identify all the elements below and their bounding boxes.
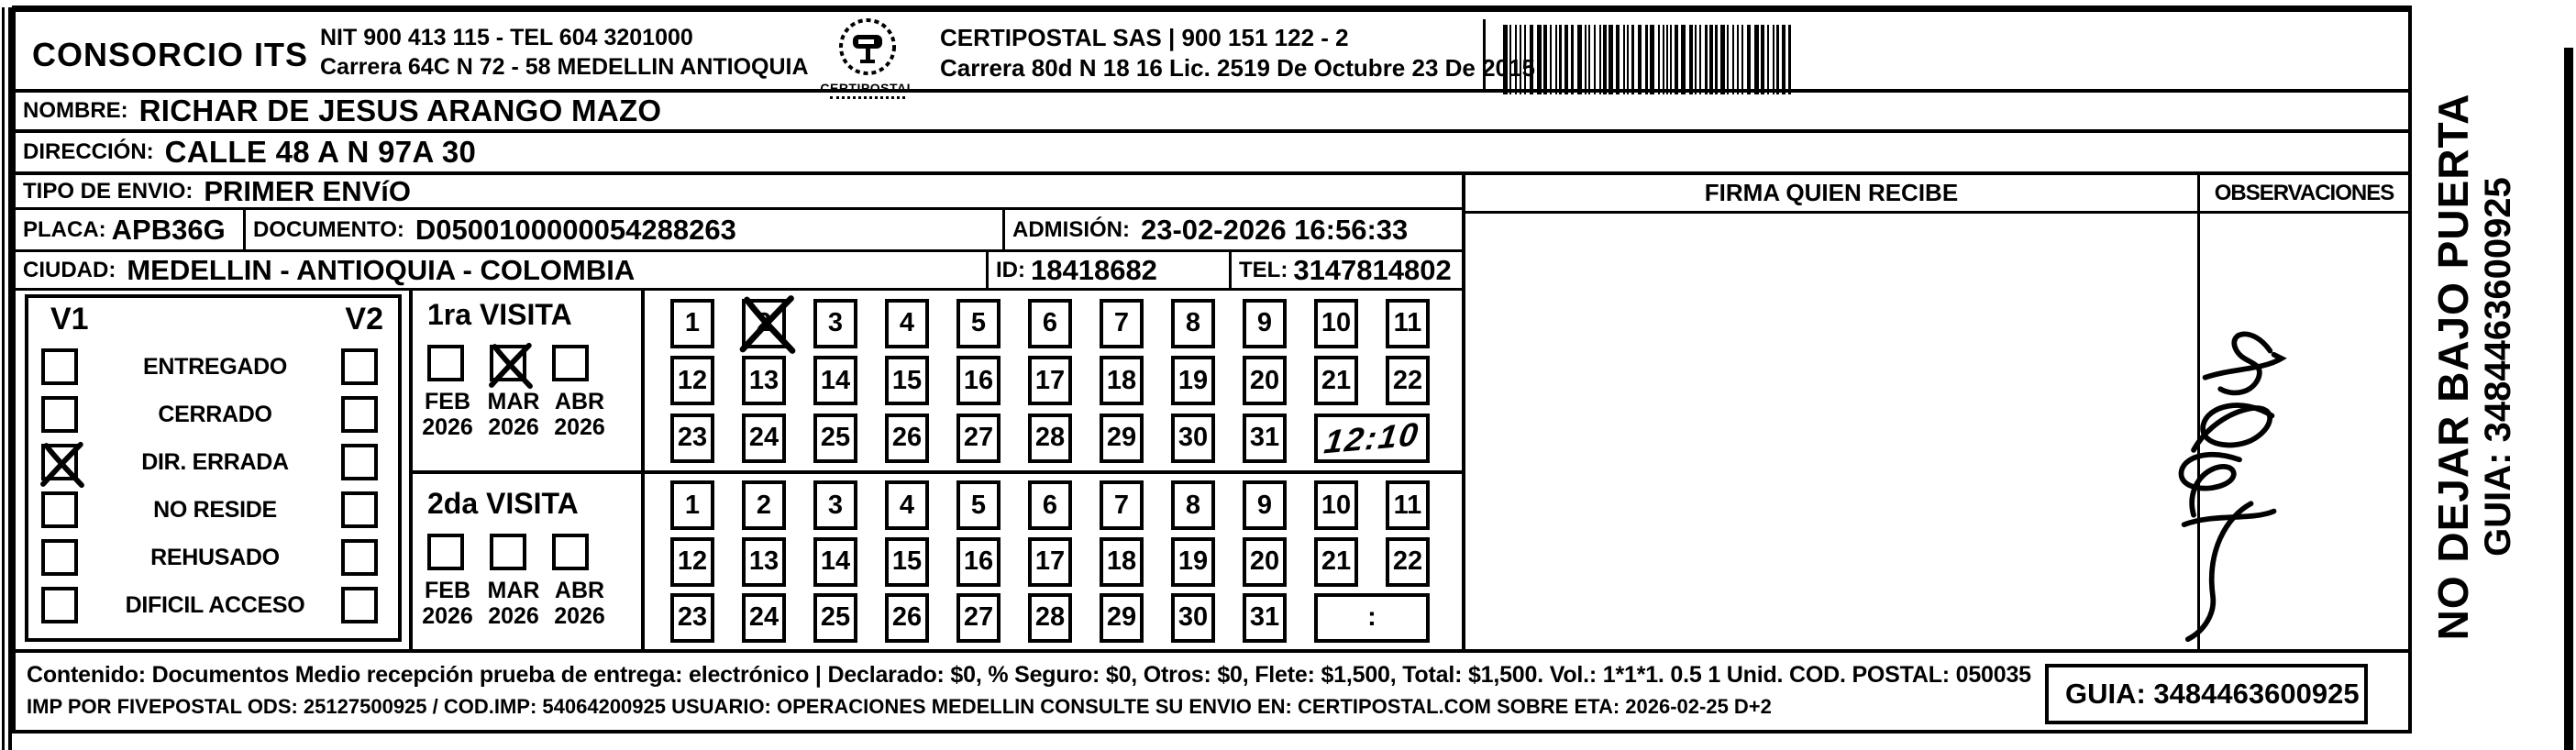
shipment-detail-panel: TIPO DE ENVIO: PRIMER ENVíO PLACA: APB36… [16,175,1465,649]
checkbox [41,491,78,528]
scanned-delivery-form-page: CONSORCIO ITS NIT 900 413 115 - TEL 604 … [0,0,2576,750]
day-box: 11 [1386,480,1430,530]
visit-time-box: : [1314,593,1430,643]
day-row: 23242526272829303112:10 [670,414,1462,463]
time-colon: : [1367,602,1376,633]
day-box: 6 [1028,480,1072,530]
visit-month-labels: FEB2026MAR2026ABR2026 [415,389,641,440]
visit-month-labels: FEB2026MAR2026ABR2026 [415,578,641,629]
signature-panel-body [1465,214,2408,649]
signature-scribble [2147,314,2330,658]
day-row: 232425262728293031: [670,593,1462,643]
status-option-row: DIFICIL ACCESO [41,587,389,623]
visit-title: 1ra VISITA [413,291,641,332]
month-label: MAR2026 [481,578,547,629]
checkbox [341,539,378,576]
status-option-label: CERRADO [89,402,341,428]
status-option-label: REHUSADO [89,545,341,571]
day-box: 8 [1171,299,1215,348]
day-box: 20 [1243,537,1287,587]
checkbox [41,444,78,480]
handwritten-x-mark [485,340,536,392]
placa-documento-row: PLACA: APB36G DOCUMENTO: D05001000000542… [16,210,1462,252]
admision-label: ADMISIÓN: [1012,217,1130,243]
placa-label: PLACA: [23,217,106,243]
day-row: 1234567891011 [670,299,1462,348]
firma-area [1465,214,2197,649]
status-option-row: CERRADO [41,396,389,433]
checkbox [341,444,378,480]
handwritten-x-mark [37,439,88,491]
day-box: 1 [670,480,714,530]
day-row: 1213141516171819202122 [670,537,1462,587]
day-box: 1 [670,299,714,348]
day-box: 25 [813,414,857,463]
visit-panel: 1ra VISITA FEB2026MAR2026ABR2026 [413,291,641,470]
provider-address: Carrera 80d N 18 16 Lic. 2519 De Octubre… [940,53,1535,83]
direccion-label: DIRECCIÓN: [23,139,154,165]
provider-info: CERTIPOSTAL SAS | 900 151 122 - 2 Carrer… [940,23,1535,83]
ciudad-label: CIUDAD: [23,258,116,283]
day-box: 3 [813,299,857,348]
day-box: 22 [1386,537,1430,587]
id-label: ID: [996,258,1025,283]
checkbox [552,345,589,381]
day-box: 13 [742,356,786,405]
day-box: 21 [1314,537,1358,587]
status-option-rows: ENTREGADOCERRADODIR. ERRADANO RESIDEREHU… [28,337,398,638]
day-row: 1234567891011 [670,480,1462,530]
day-box: 11 [1386,299,1430,348]
tel-label: TEL: [1239,258,1288,283]
placa-value: APB36G [112,214,226,247]
visit-month-checkboxes [427,345,641,381]
firma-header: FIRMA QUIEN RECIBE [1465,175,2197,211]
month-label: FEB2026 [415,389,481,440]
logo-tagline-squiggle [830,96,905,99]
checkbox [552,534,589,570]
day-box: 31 [1243,414,1287,463]
v2-header: V2 [345,302,383,337]
admision-value: 23-02-2026 16:56:33 [1141,214,1408,247]
checkbox [41,396,78,433]
day-box: 24 [742,593,786,643]
day-box: 22 [1386,356,1430,405]
nombre-value: RICHAR DE JESUS ARANGO MAZO [139,94,662,128]
form-header: CONSORCIO ITS NIT 900 413 115 - TEL 604 … [16,12,2408,93]
visit-day-grids: 1234567891011121314151617181920212223242… [645,291,1462,649]
signature-panel: FIRMA QUIEN RECIBE OBSERVACIONES [1465,175,2408,649]
day-box: 17 [1028,356,1072,405]
tipo-envio-value: PRIMER ENVíO [204,175,411,208]
day-row: 1213141516171819202122 [670,356,1462,405]
guia-number-box: GUIA: 3484463600925 [2045,664,2368,724]
placa-cell: PLACA: APB36G [16,210,243,249]
checkbox [490,534,526,570]
ciudad-cell: CIUDAD: MEDELLIN - ANTIOQUIA - COLOMBIA [16,252,986,288]
status-option-label: NO RESIDE [89,497,341,524]
day-box: 10 [1314,299,1358,348]
day-box: 16 [956,537,1001,587]
day-box: 17 [1028,537,1072,587]
tel-cell: TEL: 3147814802 [1229,252,1462,288]
ciudad-id-tel-row: CIUDAD: MEDELLIN - ANTIOQUIA - COLOMBIA … [16,252,1462,291]
day-box: 5 [956,299,1001,348]
tipo-envio-row: TIPO DE ENVIO: PRIMER ENVíO [16,175,1462,210]
day-box: 19 [1171,356,1215,405]
day-box: 6 [1028,299,1072,348]
status-option-row: REHUSADO [41,539,389,576]
page-left-rule [2,7,5,750]
day-box: 10 [1314,480,1358,530]
checkbox [427,534,464,570]
visit-title: 2da VISITA [413,474,641,521]
day-box: 21 [1314,356,1358,405]
day-box: 26 [885,414,929,463]
day-box: 12 [670,537,714,587]
day-box: 2 [742,299,786,348]
direccion-row: DIRECCIÓN: CALLE 48 A N 97A 30 [16,133,2408,175]
day-box: 15 [885,537,929,587]
nombre-row: NOMBRE: RICHAR DE JESUS ARANGO MAZO [16,93,2408,133]
day-box: 23 [670,593,714,643]
checkbox [490,345,526,381]
handwritten-time: 12:10 [1322,414,1422,461]
day-box: 5 [956,480,1001,530]
visit-day-grid: 1234567891011121314151617181920212223242… [645,291,1462,470]
day-box: 28 [1028,593,1072,643]
day-box: 29 [1100,414,1144,463]
day-box: 25 [813,593,857,643]
delivery-status-section: V1 V2 ENTREGADOCERRADODIR. ERRADANO RESI… [16,291,1462,649]
page-right-edge-bar [2564,48,2573,750]
month-label: ABR2026 [547,578,613,629]
form-middle: TIPO DE ENVIO: PRIMER ENVíO PLACA: APB36… [16,175,2408,649]
day-box: 4 [885,480,929,530]
signature-panel-headers: FIRMA QUIEN RECIBE OBSERVACIONES [1465,175,2408,214]
day-box: 27 [956,593,1001,643]
day-box: 9 [1243,299,1287,348]
day-box: 19 [1171,537,1215,587]
company-nit: NIT 900 413 115 - TEL 604 3201000 [320,23,809,52]
visit-panel: 2da VISITA FEB2026MAR2026ABR2026 [413,470,641,649]
month-label: ABR2026 [547,389,613,440]
status-option-label: DIR. ERRADA [89,449,341,476]
nombre-label: NOMBRE: [23,98,128,124]
checkbox [41,587,78,623]
day-box: 26 [885,593,929,643]
provider-name: CERTIPOSTAL SAS | 900 151 122 - 2 [940,23,1535,53]
day-box: 15 [885,356,929,405]
day-box: 7 [1100,480,1144,530]
day-box: 16 [956,356,1001,405]
visit-month-checkboxes [427,534,641,570]
day-box: 14 [813,356,857,405]
observaciones-header: OBSERVACIONES [2197,175,2408,211]
documento-label: DOCUMENTO: [253,217,404,243]
v1-header: V1 [50,302,89,337]
status-cell: V1 V2 ENTREGADOCERRADODIR. ERRADANO RESI… [16,291,409,649]
tel-value: 3147814802 [1293,254,1451,287]
visit-month-column: 1ra VISITA FEB2026MAR2026ABR2026 2da VIS… [409,291,645,649]
day-box: 18 [1100,537,1144,587]
handwritten-x-mark [735,291,801,358]
day-box: 20 [1243,356,1287,405]
no-dejar-bajo-puerta-text: NO DEJAR BAJO PUERTA [2428,94,2478,641]
day-box: 4 [885,299,929,348]
day-box: 14 [813,537,857,587]
company-info: NIT 900 413 115 - TEL 604 3201000 Carrer… [320,23,809,82]
status-checkbox-box: V1 V2 ENTREGADOCERRADODIR. ERRADANO RESI… [25,294,402,642]
delivery-form: CONSORCIO ITS NIT 900 413 115 - TEL 604 … [12,6,2412,733]
day-box: 30 [1171,593,1215,643]
company-address: Carrera 64C N 72 - 58 MEDELLIN ANTIOQUIA [320,52,809,82]
certipostal-stamp-logo-icon: CERTIPOSTAL [820,14,915,99]
status-option-row: DIR. ERRADA [41,444,389,480]
day-box: 3 [813,480,857,530]
day-box: 31 [1243,593,1287,643]
visit-columns-header: V1 V2 [28,298,398,337]
side-guia-number: GUIA: 3484463600925 [2478,177,2519,557]
day-box: 18 [1100,356,1144,405]
day-box: 27 [956,414,1001,463]
month-label: MAR2026 [481,389,547,440]
id-cell: ID: 18418682 [986,252,1229,288]
status-option-row: ENTREGADO [41,348,389,385]
logo-caption: CERTIPOSTAL [820,81,915,95]
documento-cell: DOCUMENTO: D0500100000054288263 [243,210,1002,249]
day-box: 8 [1171,480,1215,530]
day-box: 7 [1100,299,1144,348]
day-box: 24 [742,414,786,463]
day-box: 30 [1171,414,1215,463]
admision-cell: ADMISIÓN: 23-02-2026 16:56:33 [1002,210,1462,249]
checkbox [341,396,378,433]
status-option-label: DIFICIL ACCESO [89,592,341,619]
visit-day-grid: 1234567891011121314151617181920212223242… [645,470,1462,649]
form-footer: Contenido: Documentos Medio recepción pr… [16,649,2408,730]
status-option-label: ENTREGADO [89,354,341,381]
checkbox [341,348,378,385]
stamp-circle-icon [835,14,901,80]
tipo-envio-label: TIPO DE ENVIO: [23,179,193,204]
visit-time-box: 12:10 [1314,414,1430,463]
documento-value: D0500100000054288263 [415,214,736,247]
day-box: 13 [742,537,786,587]
month-label: FEB2026 [415,578,481,629]
day-box: 28 [1028,414,1072,463]
guia-barcode [1503,25,1802,94]
day-box: 2 [742,480,786,530]
checkbox [41,348,78,385]
observaciones-area [2197,214,2408,649]
header-divider [1483,19,1486,89]
day-box: 12 [670,356,714,405]
side-note-rotated: NO DEJAR BAJO PUERTA GUIA: 3484463600925 [2405,64,2542,669]
day-box: 23 [670,414,714,463]
day-box: 29 [1100,593,1144,643]
checkbox [41,539,78,576]
checkbox [427,345,464,381]
checkbox [341,587,378,623]
id-value: 18418682 [1031,254,1157,287]
ciudad-value: MEDELLIN - ANTIOQUIA - COLOMBIA [127,254,635,287]
checkbox [341,491,378,528]
status-option-row: NO RESIDE [41,491,389,528]
company-name: CONSORCIO ITS [32,36,308,74]
day-box: 9 [1243,480,1287,530]
direccion-value: CALLE 48 A N 97A 30 [165,135,476,170]
